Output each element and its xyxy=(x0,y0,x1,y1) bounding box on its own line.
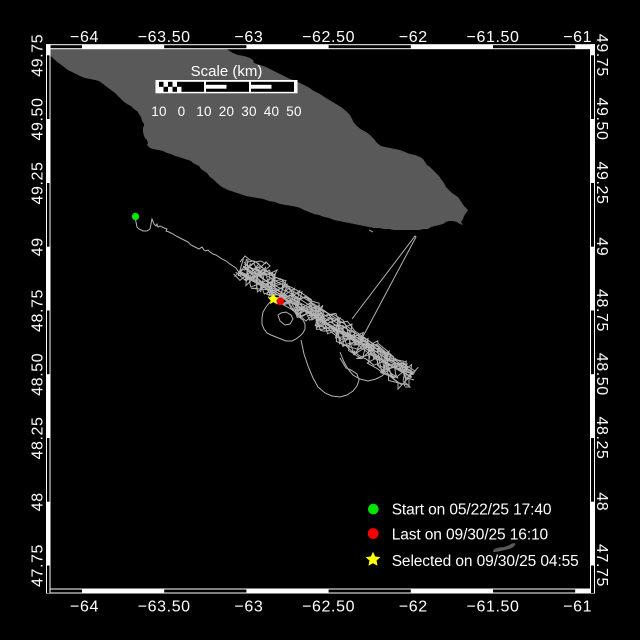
svg-text:40: 40 xyxy=(264,104,279,119)
svg-text:−64: −64 xyxy=(70,599,99,616)
svg-text:Selected on 09/30/25 04:55: Selected on 09/30/25 04:55 xyxy=(392,553,579,570)
svg-text:47.75: 47.75 xyxy=(593,544,610,587)
svg-text:50: 50 xyxy=(286,104,301,119)
svg-text:−62.50: −62.50 xyxy=(302,599,355,616)
svg-text:48.75: 48.75 xyxy=(30,289,47,332)
svg-text:49.50: 49.50 xyxy=(593,97,610,140)
svg-text:10: 10 xyxy=(196,104,211,119)
svg-text:49: 49 xyxy=(30,237,47,256)
svg-text:−61: −61 xyxy=(563,599,592,616)
svg-text:−63: −63 xyxy=(234,599,263,616)
svg-text:49.75: 49.75 xyxy=(593,34,610,77)
svg-text:0: 0 xyxy=(178,104,186,119)
svg-text:−63: −63 xyxy=(234,29,263,46)
svg-text:49: 49 xyxy=(593,237,610,256)
svg-text:49.25: 49.25 xyxy=(30,161,47,204)
svg-text:−64: −64 xyxy=(70,29,99,46)
svg-text:−62.50: −62.50 xyxy=(302,29,355,46)
svg-text:48.50: 48.50 xyxy=(30,353,47,396)
svg-text:−63.50: −63.50 xyxy=(138,599,191,616)
svg-text:20: 20 xyxy=(219,104,234,119)
svg-text:−61.50: −61.50 xyxy=(467,599,520,616)
svg-text:−62: −62 xyxy=(399,599,428,616)
svg-text:Scale (km): Scale (km) xyxy=(191,63,263,80)
svg-text:48.25: 48.25 xyxy=(593,416,610,459)
svg-text:49.50: 49.50 xyxy=(30,97,47,140)
svg-text:10: 10 xyxy=(151,104,166,119)
svg-text:48: 48 xyxy=(593,492,610,511)
svg-text:48: 48 xyxy=(30,492,47,511)
svg-text:−62: −62 xyxy=(399,29,428,46)
svg-text:−61.50: −61.50 xyxy=(467,29,520,46)
svg-text:30: 30 xyxy=(241,104,256,119)
svg-text:49.25: 49.25 xyxy=(593,161,610,204)
svg-text:−61: −61 xyxy=(563,29,592,46)
svg-text:48.75: 48.75 xyxy=(593,289,610,332)
svg-text:Last on 09/30/25 16:10: Last on 09/30/25 16:10 xyxy=(392,527,549,544)
svg-text:47.75: 47.75 xyxy=(30,544,47,587)
svg-text:49.75: 49.75 xyxy=(30,34,47,77)
svg-text:48.25: 48.25 xyxy=(30,416,47,459)
svg-text:−63.50: −63.50 xyxy=(138,29,191,46)
svg-text:Start on 05/22/25 17:40: Start on 05/22/25 17:40 xyxy=(392,502,552,519)
svg-text:48.50: 48.50 xyxy=(593,353,610,396)
